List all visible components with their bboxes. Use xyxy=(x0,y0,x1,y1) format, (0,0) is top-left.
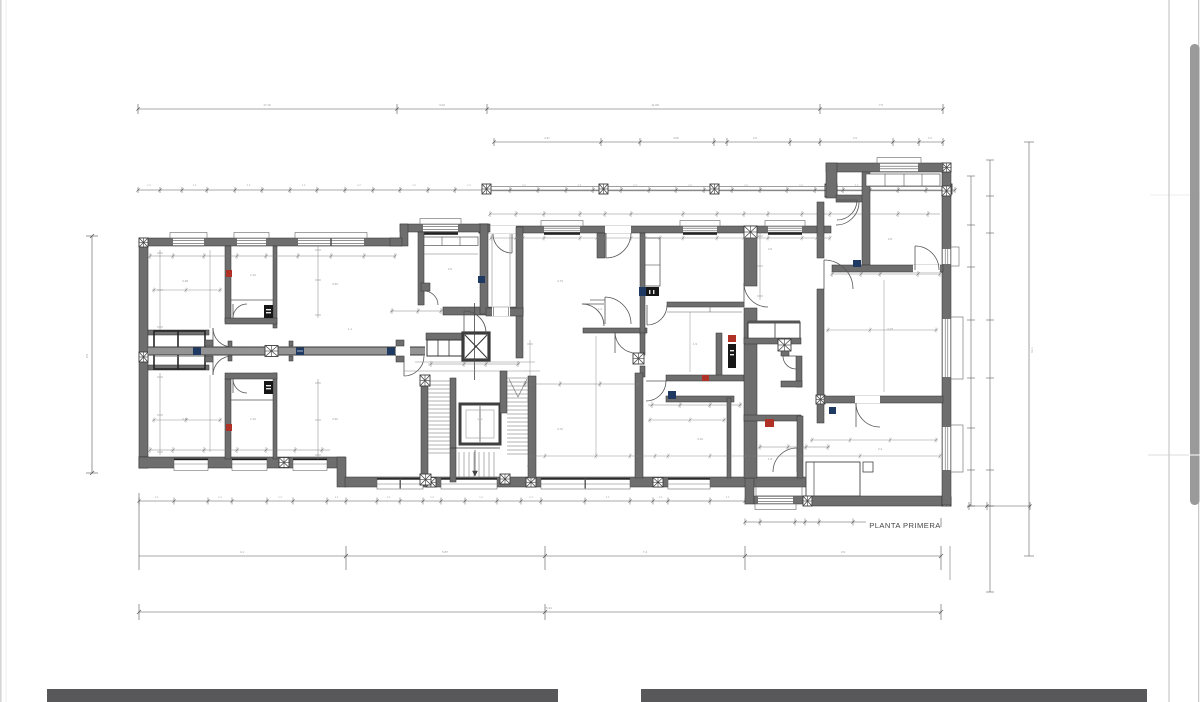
svg-text:esc: esc xyxy=(478,417,483,421)
svg-text:1.4: 1.4 xyxy=(387,496,391,499)
svg-text:1.4: 1.4 xyxy=(335,496,339,499)
svg-text:1.4: 1.4 xyxy=(529,496,533,499)
svg-text:2.6: 2.6 xyxy=(448,267,453,271)
svg-text:3.92: 3.92 xyxy=(332,282,338,286)
svg-text:9.5: 9.5 xyxy=(85,354,89,359)
svg-text:3.06: 3.06 xyxy=(673,136,679,140)
svg-text:3.10: 3.10 xyxy=(697,437,703,441)
svg-text:3.48: 3.48 xyxy=(182,417,188,421)
svg-text:4.15: 4.15 xyxy=(887,327,893,331)
svg-text:1.2: 1.2 xyxy=(147,184,151,187)
svg-text:2.9: 2.9 xyxy=(853,136,857,140)
svg-text:1.2: 1.2 xyxy=(247,184,251,187)
svg-text:3.9: 3.9 xyxy=(841,550,846,554)
svg-text:1.4: 1.4 xyxy=(726,496,730,499)
svg-text:1.4: 1.4 xyxy=(155,496,159,499)
svg-text:11.68: 11.68 xyxy=(651,103,659,107)
svg-text:11.1: 11.1 xyxy=(1030,347,1034,353)
svg-text:5.87: 5.87 xyxy=(442,550,448,554)
svg-text:1.1: 1.1 xyxy=(348,327,353,331)
svg-text:25.34: 25.34 xyxy=(544,606,552,610)
svg-text:4.73: 4.73 xyxy=(557,279,563,283)
svg-text:7.5: 7.5 xyxy=(879,103,884,107)
svg-text:2.8: 2.8 xyxy=(888,237,893,241)
svg-text:1.4: 1.4 xyxy=(659,496,663,499)
svg-text:3.48: 3.48 xyxy=(182,279,188,283)
svg-text:1.4: 1.4 xyxy=(218,496,222,499)
svg-text:2.6: 2.6 xyxy=(753,136,757,140)
svg-text:17.16: 17.16 xyxy=(263,103,271,107)
svg-text:4.37: 4.37 xyxy=(544,136,550,140)
svg-text:1.9: 1.9 xyxy=(693,342,698,346)
svg-text:1.8: 1.8 xyxy=(768,457,773,461)
svg-text:3.4: 3.4 xyxy=(878,447,883,451)
svg-text:1.4: 1.4 xyxy=(479,496,483,499)
svg-text:1.2: 1.2 xyxy=(193,184,197,187)
svg-text:1.0: 1.0 xyxy=(928,136,932,140)
svg-text:2.10: 2.10 xyxy=(250,417,256,421)
svg-text:3.02: 3.02 xyxy=(439,103,445,107)
svg-text:1.2: 1.2 xyxy=(302,184,306,187)
svg-text:1.4: 1.4 xyxy=(278,496,282,499)
svg-text:1.2: 1.2 xyxy=(412,184,416,187)
svg-text:4.1: 4.1 xyxy=(240,550,245,554)
svg-text:1.2: 1.2 xyxy=(248,347,253,351)
svg-text:2.9: 2.9 xyxy=(768,247,773,251)
svg-text:3.92: 3.92 xyxy=(332,417,338,421)
svg-text:2.10: 2.10 xyxy=(250,273,256,277)
svg-text:PLANTA PRIMERA: PLANTA PRIMERA xyxy=(869,521,941,530)
svg-text:1.4: 1.4 xyxy=(606,496,610,499)
svg-text:1.4: 1.4 xyxy=(598,307,603,311)
svg-text:1.2: 1.2 xyxy=(467,184,471,187)
svg-text:4.70: 4.70 xyxy=(557,427,563,431)
svg-text:1.2: 1.2 xyxy=(357,184,361,187)
svg-text:1.4: 1.4 xyxy=(430,496,434,499)
svg-text:7.4: 7.4 xyxy=(643,550,648,554)
